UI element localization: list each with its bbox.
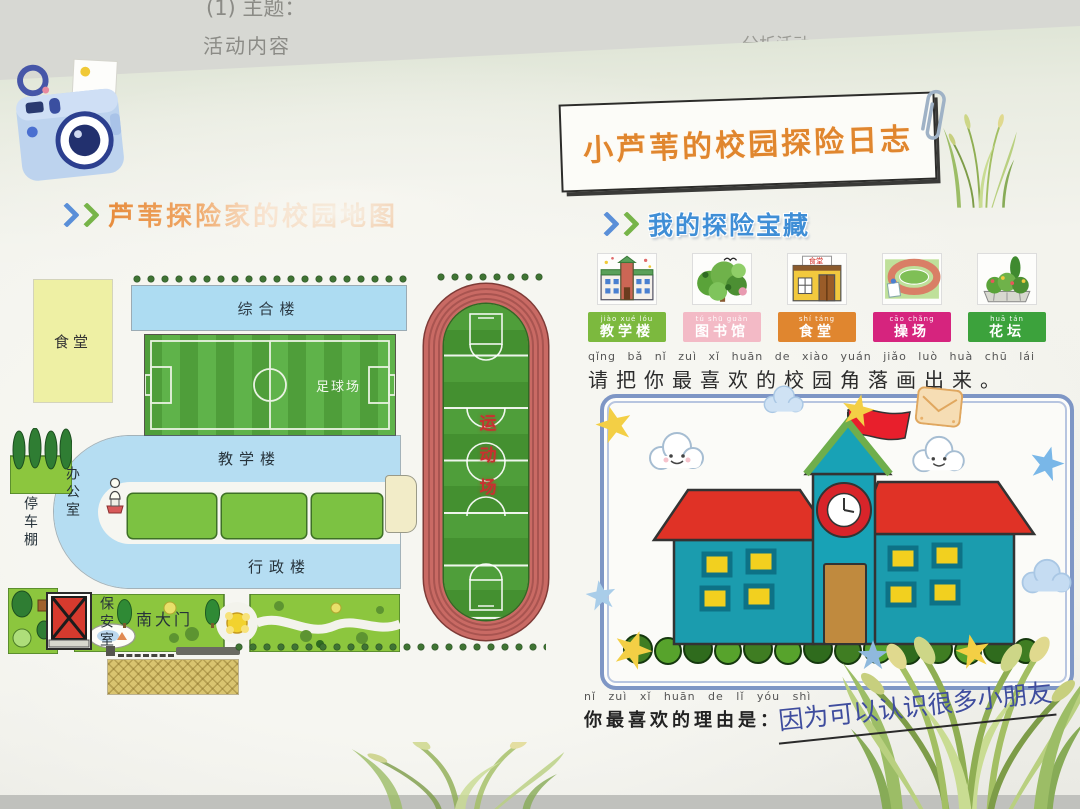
canteen-label: 食堂 bbox=[54, 331, 92, 352]
treasure-library: tú shū guǎn 图书馆 bbox=[683, 254, 761, 342]
treasure-name: 花坛 bbox=[989, 325, 1025, 339]
gate-bar bbox=[176, 647, 240, 655]
statue-icon bbox=[104, 474, 126, 518]
map-complex-building: 综合楼 bbox=[132, 286, 406, 330]
treasure-flower-bed: huā tán 花坛 bbox=[968, 254, 1046, 342]
security-room-building bbox=[46, 592, 92, 650]
sports-ground-label: 运动场 bbox=[474, 414, 499, 510]
journal-title-text: 小芦苇的校园探险日志 bbox=[582, 114, 913, 169]
security-room-label: 保安室 bbox=[96, 596, 116, 650]
treasure-label: cāo chǎng 操场 bbox=[873, 312, 951, 342]
tree-dots-row bbox=[234, 642, 546, 652]
treasure-name: 食堂 bbox=[799, 325, 835, 339]
draw-prompt-text: 请把你最喜欢的校园角落画出来。 bbox=[588, 364, 1035, 393]
lawn bbox=[312, 494, 382, 538]
flower-bed-image bbox=[978, 254, 1036, 304]
gate-tree-icon bbox=[206, 600, 219, 624]
campus-map: 食堂 综合楼 bbox=[8, 270, 548, 698]
running-track: 运动场 bbox=[424, 284, 548, 640]
treasure-pinyin: huā tán bbox=[990, 316, 1024, 323]
treasure-playground: cāo chǎng 操场 bbox=[873, 254, 951, 342]
football-field-label: 足球场 bbox=[316, 376, 361, 395]
left-section-heading: 芦苇探险家的校园地图 bbox=[58, 196, 398, 233]
right-section-heading: 我的探险宝藏 bbox=[598, 206, 810, 242]
lawn bbox=[222, 494, 306, 538]
door bbox=[824, 564, 866, 644]
parking-shed-label: 停车棚 bbox=[20, 496, 40, 550]
cloud-face-icon bbox=[645, 430, 709, 474]
cloud-face-icon bbox=[908, 434, 970, 476]
canteen-image: 食堂 bbox=[788, 254, 846, 304]
treasure-label: jiào xué lóu 教学楼 bbox=[588, 312, 666, 342]
lawn bbox=[128, 494, 216, 538]
tree-dots-row bbox=[132, 274, 408, 284]
treasure-teaching-building: jiào xué lóu 教学楼 bbox=[588, 254, 666, 342]
instant-camera-icon bbox=[5, 50, 136, 194]
treasure-pinyin: shí táng bbox=[799, 316, 835, 323]
chevron-green-icon bbox=[614, 211, 639, 236]
south-gate-label: 南大门 bbox=[136, 606, 193, 630]
treasure-row: jiào xué lóu 教学楼 tú shū guǎn 图书馆 bbox=[588, 254, 1058, 342]
draw-prompt: qǐng bǎ nǐ zuì xǐ huān de xiào yuán jiǎo… bbox=[588, 350, 1035, 393]
treasure-name: 操场 bbox=[894, 325, 930, 339]
library-image bbox=[693, 254, 751, 304]
treasure-label: tú shū guǎn 图书馆 bbox=[683, 312, 761, 342]
small-building bbox=[386, 476, 416, 532]
playground-image bbox=[883, 254, 941, 304]
behind-text: 活动内容 bbox=[203, 30, 291, 59]
left-heading-text: 芦苇探险家的校园地图 bbox=[108, 196, 398, 233]
complex-label: 综合楼 bbox=[237, 298, 300, 319]
worksheet-photo: (1) 主题： 活动内容 分析活动 芦苇探险家的校园地图 bbox=[0, 0, 1080, 809]
treasure-pinyin: jiào xué lóu bbox=[601, 316, 653, 323]
office-label: 办公室 bbox=[62, 466, 82, 520]
treasure-name: 图书馆 bbox=[695, 325, 749, 339]
treasure-label: huā tán 花坛 bbox=[968, 312, 1046, 342]
right-heading-text: 我的探险宝藏 bbox=[648, 206, 810, 242]
treasure-label: shí táng 食堂 bbox=[778, 312, 856, 342]
blue-cloud-icon bbox=[1018, 556, 1076, 598]
chevron-green-icon bbox=[74, 202, 99, 227]
gate-chain bbox=[118, 648, 174, 657]
entrance-paving bbox=[108, 660, 238, 694]
treasure-pinyin: cāo chǎng bbox=[889, 316, 934, 323]
draw-prompt-pinyin: qǐng bǎ nǐ zuì xǐ huān de xiào yuán jiǎo… bbox=[588, 350, 1035, 363]
gate-tree-icon bbox=[118, 600, 131, 624]
blue-cloud-icon bbox=[758, 384, 810, 416]
tree-dots-row bbox=[436, 272, 548, 282]
envelope-icon bbox=[914, 386, 964, 429]
desk-edge bbox=[0, 795, 1080, 809]
treasure-pinyin: tú shū guǎn bbox=[696, 316, 749, 323]
behind-text: (1) 主题： bbox=[206, 0, 305, 22]
camera-illustration bbox=[5, 50, 137, 198]
teaching-building-label: 教学楼 bbox=[218, 448, 281, 469]
treasure-canteen: 食堂 shí táng 食堂 bbox=[778, 254, 856, 342]
basketball-courts: 运动场 bbox=[444, 304, 528, 620]
admin-building-label: 行政楼 bbox=[248, 556, 311, 577]
canteen-sign-text: 食堂 bbox=[809, 256, 824, 265]
teaching-building-image bbox=[598, 254, 656, 304]
map-canteen: 食堂 bbox=[34, 280, 112, 402]
journal-title-box: 小芦苇的校园探险日志 bbox=[559, 91, 938, 192]
treasure-name: 教学楼 bbox=[600, 325, 654, 339]
